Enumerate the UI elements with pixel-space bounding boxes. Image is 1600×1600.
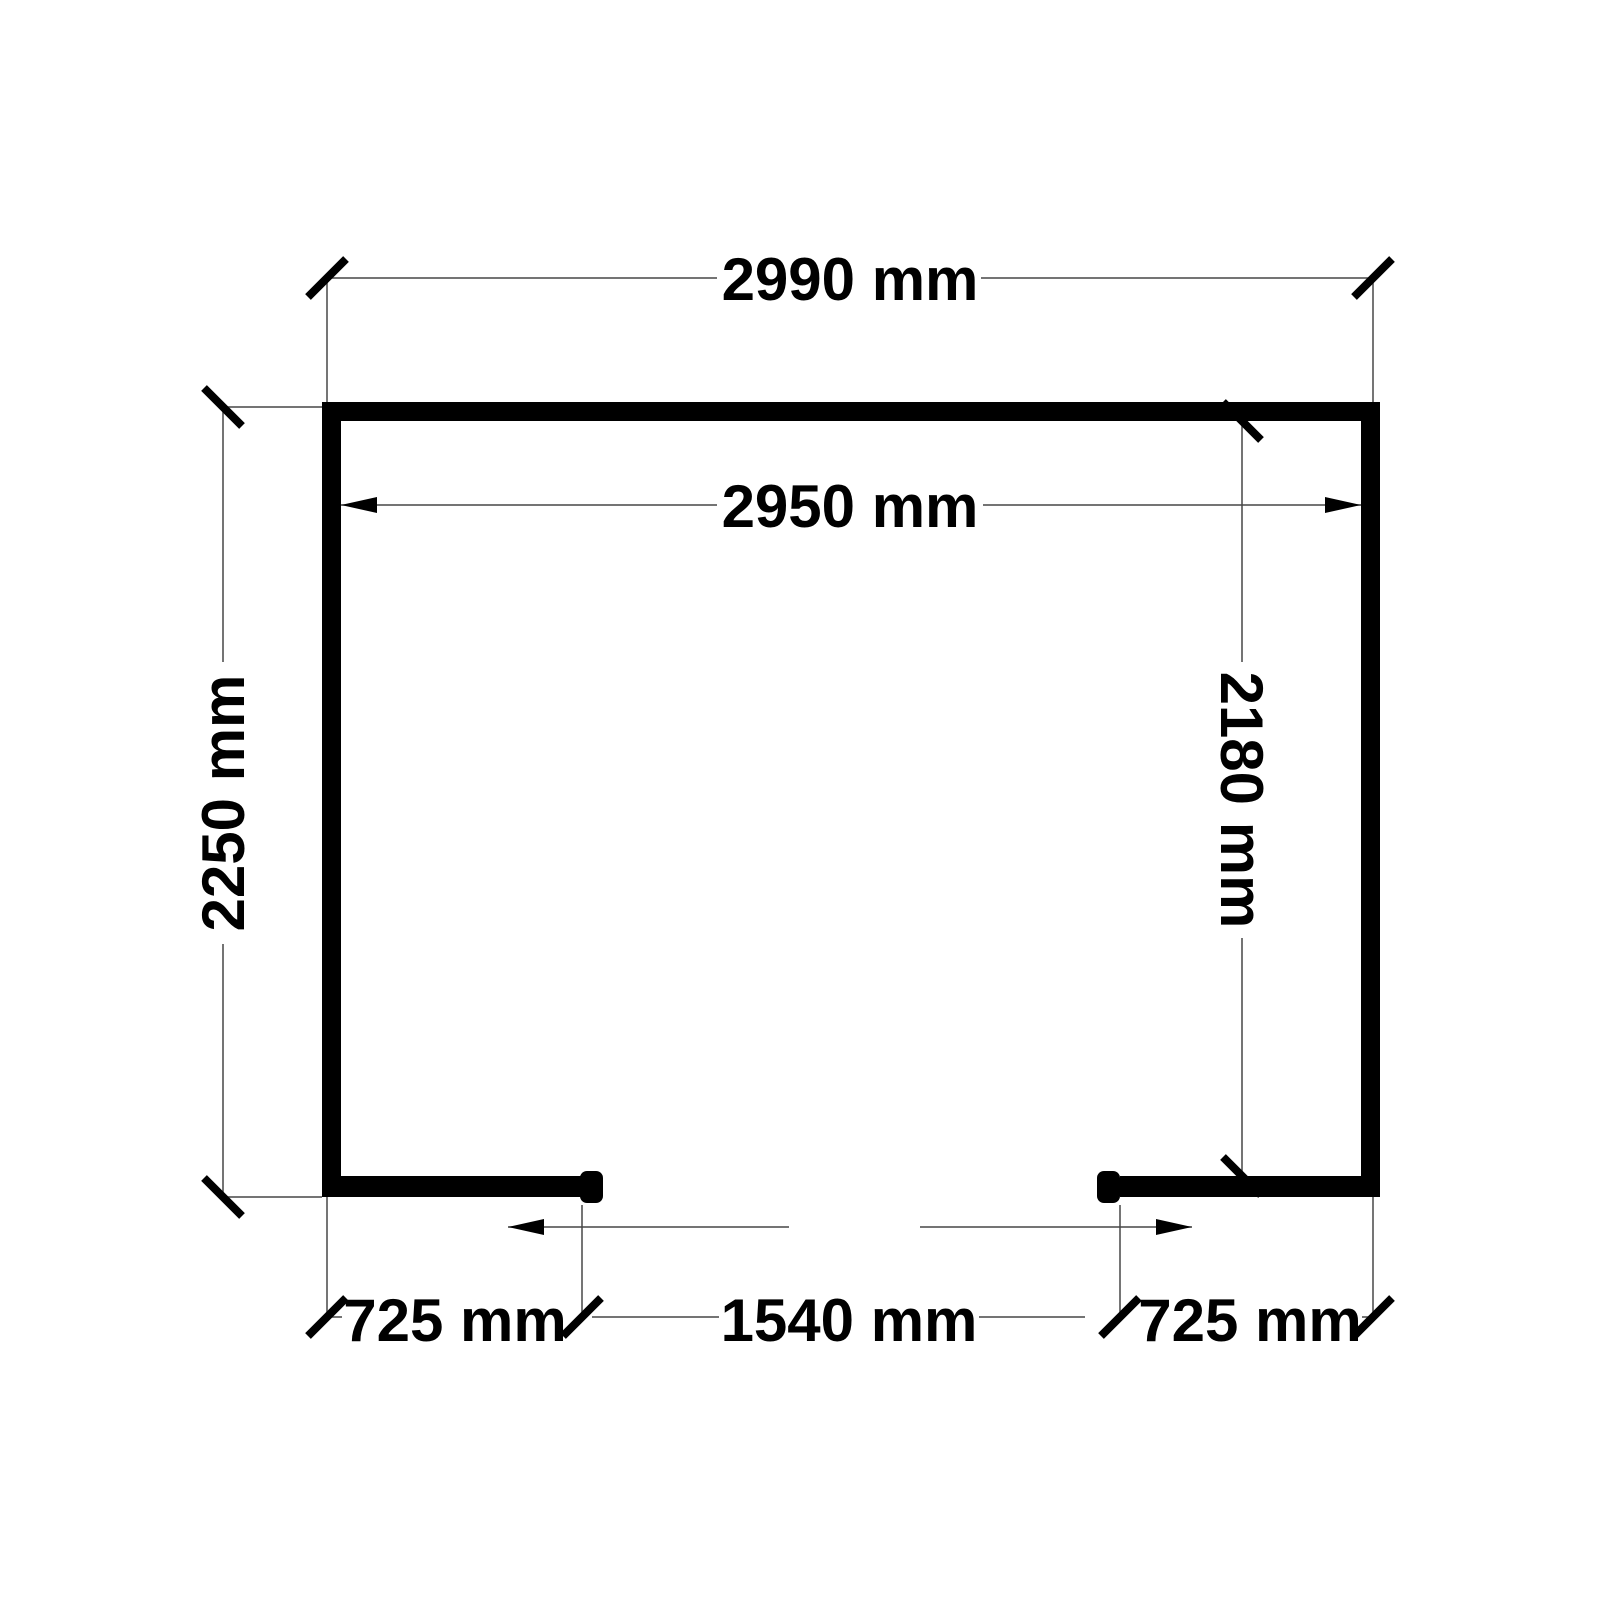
arrowhead-left	[508, 1219, 544, 1235]
inner-width-label: 2950 mm	[722, 473, 979, 540]
floor-plan-drawing: 2990 mm 2950 mm 2250 mm 2180 mm	[0, 0, 1600, 1600]
opening-width-label: 1540 mm	[721, 1287, 978, 1354]
right-segment-label: 725 mm	[1138, 1287, 1361, 1354]
dimension-inner-depth: 2180 mm	[1208, 402, 1275, 1195]
floor-plan-canvas: 2990 mm 2950 mm 2250 mm 2180 mm	[0, 0, 1600, 1600]
door-jamb-right	[1097, 1171, 1120, 1203]
dimension-inner-width: 2950 mm	[341, 473, 1361, 540]
wall-bottom-left	[322, 1176, 582, 1197]
left-segment-label: 725 mm	[343, 1287, 566, 1354]
dimension-opening: 1540 mm	[508, 1205, 1192, 1354]
wall-left	[322, 402, 341, 1197]
dimension-overall-width: 2990 mm	[308, 246, 1392, 402]
wall-right	[1361, 402, 1380, 1197]
overall-width-label: 2990 mm	[722, 246, 979, 313]
arrowhead-right	[1156, 1219, 1192, 1235]
dimension-overall-depth: 2250 mm	[190, 388, 322, 1216]
door-jamb-left	[580, 1171, 603, 1203]
inner-depth-label: 2180 mm	[1208, 672, 1275, 929]
arrowhead-left	[341, 497, 377, 513]
arrowhead-right	[1325, 497, 1361, 513]
overall-depth-label: 2250 mm	[190, 675, 257, 932]
